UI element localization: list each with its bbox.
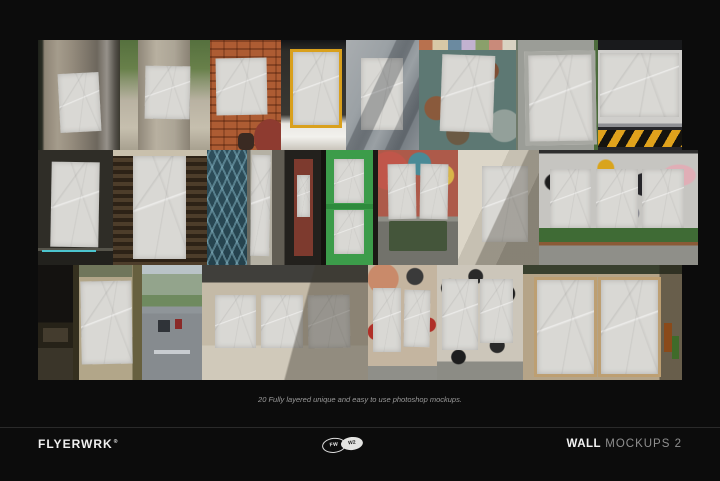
photo-detail — [238, 133, 254, 151]
poster-mockup — [524, 50, 597, 145]
photo-detail — [254, 119, 281, 150]
brand-logo: FLYERWRK® — [38, 437, 118, 451]
product-title: WALL MOCKUPS 2 — [566, 438, 682, 450]
poster-mockup — [439, 55, 494, 134]
poster-mockup — [442, 279, 478, 350]
fw-badge-logo: FW W2 — [321, 434, 363, 453]
poster-mockup — [642, 169, 683, 229]
poster-mockup — [534, 277, 597, 377]
poster-mockup — [596, 169, 637, 229]
poster-mockup — [373, 288, 401, 352]
poster-mockup — [480, 279, 513, 343]
photo-detail — [175, 319, 182, 329]
poster-mockup — [250, 155, 270, 256]
beige-three-posters-photo — [202, 265, 368, 380]
poster-mockup — [482, 166, 527, 242]
collage-row — [38, 265, 682, 380]
concrete-pillar-trees-photo — [120, 40, 210, 150]
green-door-photo — [321, 150, 378, 265]
poster-mockup — [80, 281, 132, 365]
underpass-photo — [38, 265, 73, 380]
poster-mockup — [361, 58, 403, 131]
photo-detail — [158, 320, 170, 331]
poster-mockup — [145, 66, 191, 120]
teal-rust-wall-photo — [419, 40, 516, 150]
registered-mark: ® — [114, 439, 119, 445]
photo-detail — [664, 323, 672, 353]
poster-mockup — [215, 295, 257, 348]
wood-slat-wall-photo — [113, 150, 207, 265]
photo-detail — [154, 350, 190, 353]
poster-mockup — [50, 161, 99, 247]
poster-mockup — [334, 159, 364, 203]
dark-wall-photo — [38, 150, 113, 265]
poster-mockup — [419, 164, 448, 220]
w2-oval-badge-icon: W2 — [340, 435, 363, 450]
poster-mockup — [600, 53, 679, 117]
hazard-stripe-wall-photo — [598, 40, 682, 150]
collage-row — [38, 150, 682, 265]
concrete-frame-board-photo — [516, 40, 597, 150]
poster-mockup — [297, 175, 311, 216]
street-view-photo — [142, 265, 202, 380]
grey-wall-shadow-photo — [346, 40, 419, 150]
beige-wall-photo — [458, 150, 539, 265]
red-door-storefront-photo — [272, 150, 320, 265]
product-title-bold: WALL — [566, 438, 601, 450]
collage-row — [38, 40, 682, 150]
graffiti-mural-plants-photo — [539, 150, 698, 265]
bw-graffiti-wall-photo — [437, 265, 523, 380]
pole-poster-photo — [247, 150, 273, 265]
poster-mockup — [290, 49, 342, 128]
poster-mockup — [307, 295, 349, 349]
photo-detail — [43, 328, 67, 342]
poster-mockup — [133, 156, 186, 259]
photo-detail — [389, 221, 446, 251]
footer: FLYERWRK® FW W2 WALL MOCKUPS 2 — [0, 428, 720, 460]
poster-mockup — [387, 164, 416, 220]
poster-mockup — [598, 277, 661, 377]
graffiti-wall-bench-photo — [378, 150, 458, 265]
photo-detail — [672, 336, 678, 359]
poster-mockup — [403, 290, 430, 348]
red-graffiti-wall-photo — [368, 265, 437, 380]
product-title-rest: MOCKUPS 2 — [601, 438, 682, 450]
old-door-photo — [38, 40, 120, 150]
poster-mockup — [58, 72, 102, 134]
blue-gate-photo — [207, 150, 247, 265]
pillar-poster-photo — [73, 265, 142, 380]
poster-mockup — [334, 210, 364, 254]
yellow-frame-board-photo — [281, 40, 347, 150]
poster-mockup — [215, 57, 267, 115]
brand-name: FLYERWRK — [38, 437, 113, 451]
mockup-collage — [38, 40, 682, 380]
poster-mockup — [550, 169, 591, 229]
poster-mockup — [261, 295, 303, 348]
brick-wall-photo — [210, 40, 281, 150]
double-door-posters-photo — [523, 265, 682, 380]
caption: 20 Fully layered unique and easy to use … — [0, 395, 720, 406]
